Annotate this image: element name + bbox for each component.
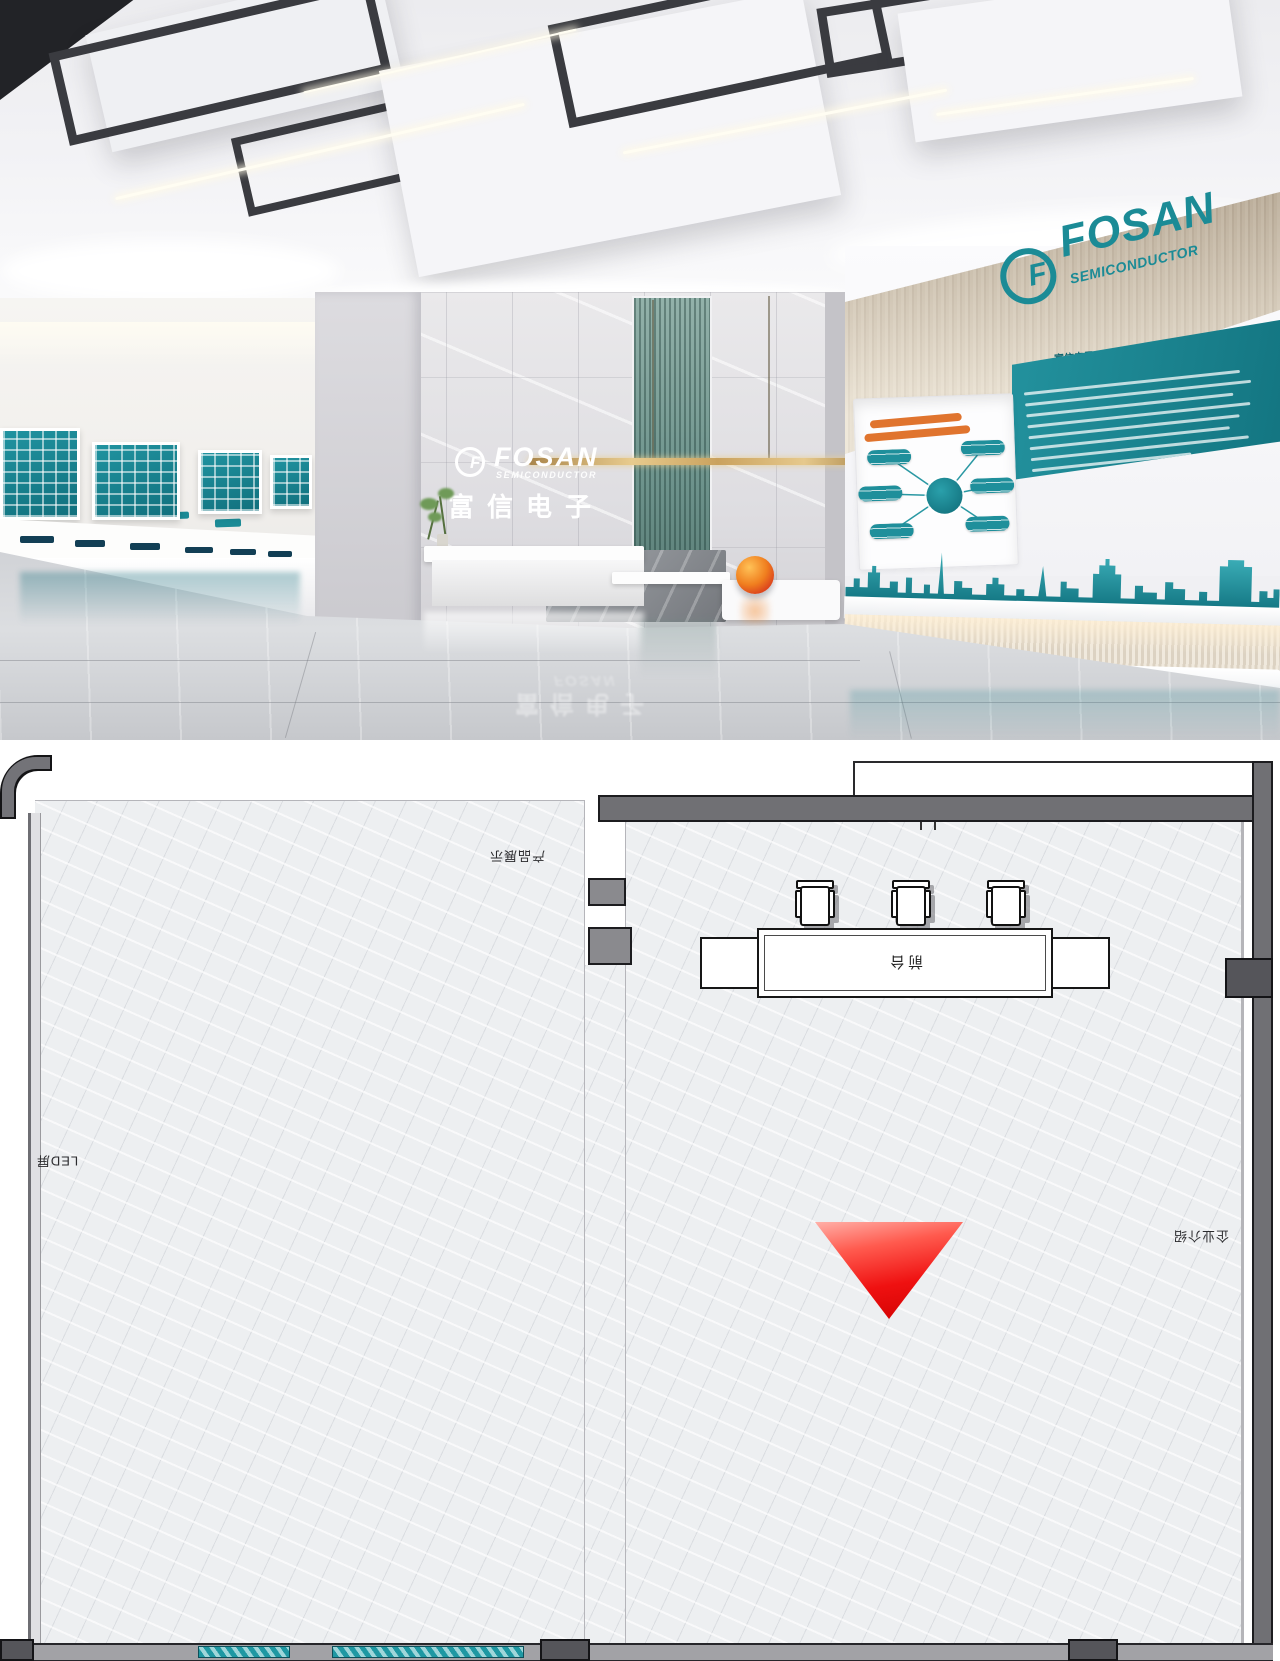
desk-left-wing: [700, 937, 759, 989]
outer-wall-joint: [853, 761, 855, 797]
chair-symbol: [891, 880, 931, 928]
fosan-logo-icon: F: [455, 447, 485, 477]
outer-wall-line: [853, 761, 1273, 763]
right-wall: [1252, 761, 1273, 1661]
brand-cn-name: 富信电子: [448, 487, 604, 524]
design-board: F FOSAN SEMICONDUCTOR 富信电子 F FOSAN SEMIC…: [0, 0, 1280, 1661]
wall-pier: [1068, 1639, 1118, 1661]
fosan-logo-icon: F: [995, 243, 1062, 310]
marble-pillar: [315, 292, 421, 632]
desk-right-wing: [1051, 937, 1110, 989]
product-item: [130, 543, 160, 550]
product-item: [185, 547, 213, 553]
cove-light: [0, 240, 340, 302]
showroom-render: F FOSAN SEMICONDUCTOR 富信电子 F FOSAN SEMIC…: [0, 0, 1280, 740]
brand-subtitle: SEMICONDUCTOR: [496, 470, 597, 480]
reflected-cn-name: 富信电子: [455, 689, 715, 724]
diagram-node: [970, 477, 1014, 494]
partition-stub: [588, 878, 626, 906]
sculpture-reflection: [740, 598, 770, 624]
logo-floor-reflection: 富信电子 FOSAN: [455, 672, 715, 724]
reception-desk-symbol: 前台: [757, 928, 1053, 998]
label-led-screen: LED屏: [36, 1153, 78, 1172]
text-line: [1030, 426, 1230, 450]
display-reflection: [20, 572, 300, 624]
diagram-node: [965, 515, 1009, 532]
desk-label: 前台: [759, 930, 1051, 996]
wall-pier: [1225, 958, 1273, 998]
panel-reflection: [640, 620, 716, 678]
pendant-cable: [768, 296, 770, 460]
display-board: [198, 450, 262, 514]
plant-leaves: [438, 488, 454, 499]
chair-seat: [800, 886, 830, 926]
label-product-display: 产品展示: [489, 848, 545, 867]
brand-name: FOSAN: [494, 442, 599, 473]
skyline-reflection: [850, 690, 1280, 740]
product-item: [75, 540, 105, 547]
section-divider: [0, 740, 1280, 755]
product-item: [20, 536, 54, 543]
diagram-node: [858, 485, 902, 502]
left-wall-glow: [0, 322, 315, 366]
door-tick: [934, 822, 936, 830]
logo-letter: F: [470, 450, 480, 475]
chair-seat: [991, 886, 1021, 926]
top-left-wall-corner-fill: [2, 757, 50, 817]
label-company-intro: 企业介绍: [1173, 1228, 1229, 1247]
product-item: [268, 551, 292, 557]
led-display-strip: [198, 1646, 290, 1658]
plant-leaves: [428, 512, 442, 522]
partition-stub: [588, 927, 632, 965]
display-board: [92, 442, 180, 520]
left-wall: [28, 813, 41, 1645]
display-board: [270, 455, 312, 509]
wall-pier: [0, 1639, 34, 1661]
display-board: [0, 428, 80, 520]
chair-seat: [896, 886, 926, 926]
wall-sign-mark: [215, 519, 241, 528]
floor-seam: [0, 660, 860, 661]
floor-connector: [585, 965, 625, 1645]
green-slat-panel: [632, 296, 712, 564]
led-display-strip: [332, 1646, 524, 1658]
desk-reflection: [424, 612, 644, 654]
pendant-cable: [652, 300, 654, 460]
floor-plan: 前台 产品展示 LED屏 企业介绍: [0, 755, 1280, 1661]
chair-symbol: [795, 880, 835, 928]
reflected-brand-name: FOSAN: [455, 672, 715, 689]
wall-pier: [540, 1639, 590, 1661]
product-item: [230, 549, 256, 555]
chair-symbol: [986, 880, 1026, 928]
door-tick: [920, 822, 922, 830]
logo-letter: F: [1023, 251, 1051, 299]
orange-polyhedron-sculpture: [736, 556, 774, 594]
desk-return: [612, 572, 730, 584]
exhibit-floor-area: [35, 800, 585, 1645]
right-wall-inner-line: [1241, 822, 1244, 1645]
diagram-node: [961, 440, 1005, 457]
top-wall: [598, 795, 1273, 822]
diagram-node: [867, 449, 911, 466]
plant-leaves: [420, 498, 438, 510]
